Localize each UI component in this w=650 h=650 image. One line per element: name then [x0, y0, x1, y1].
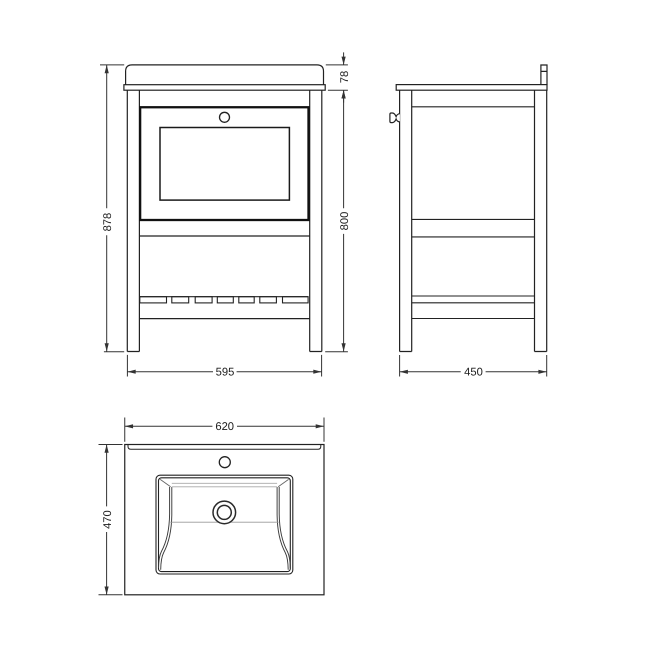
svg-text:78: 78	[339, 71, 351, 83]
svg-text:800: 800	[339, 212, 351, 231]
svg-text:470: 470	[102, 510, 114, 529]
svg-text:620: 620	[215, 421, 234, 433]
svg-text:450: 450	[464, 366, 483, 378]
svg-text:878: 878	[102, 213, 114, 232]
svg-text:595: 595	[216, 367, 235, 379]
